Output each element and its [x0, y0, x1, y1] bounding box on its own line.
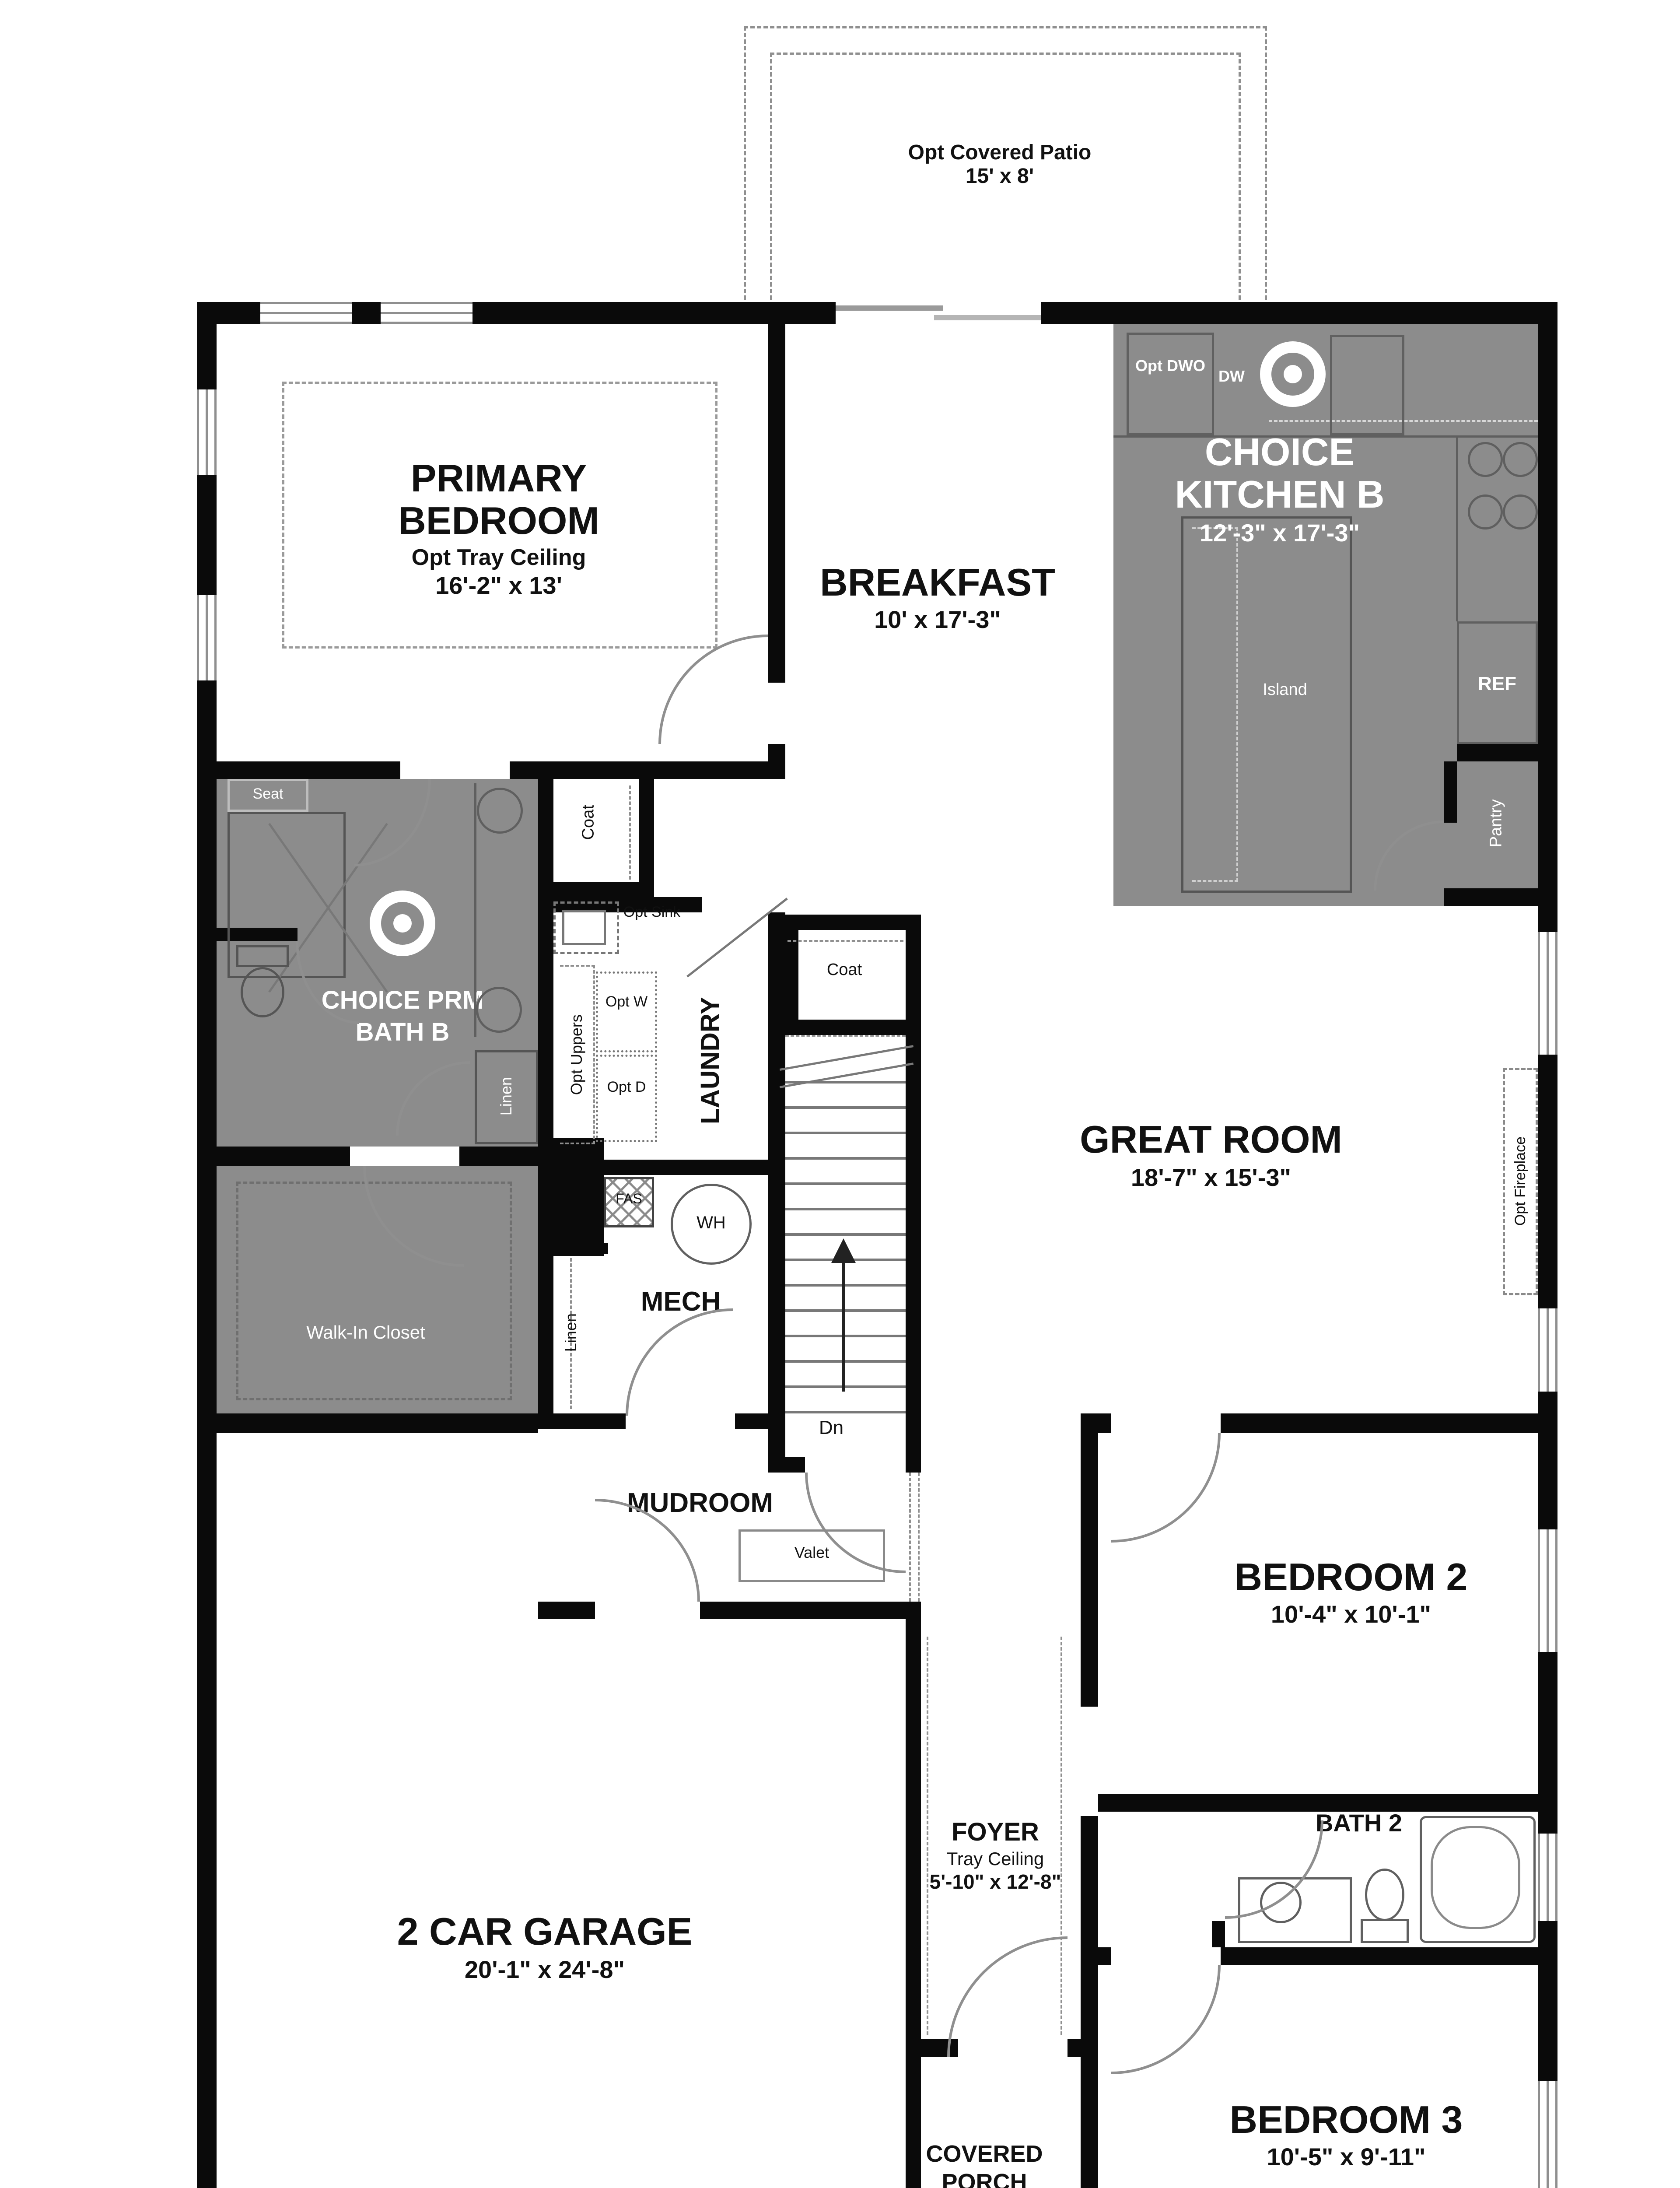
window: [197, 595, 217, 680]
coat-rod-dashed: [629, 785, 631, 880]
sliding-door-panel: [934, 315, 1041, 320]
double-wall-oven: [1127, 333, 1214, 435]
wall: [538, 1155, 553, 1429]
stairs-open-dashed: [785, 1035, 906, 1037]
breakfast-label-group: BREAKFAST 10' x 17'-3": [780, 561, 1095, 633]
bedroom2-dims: 10'-4" x 10'-1": [1193, 1601, 1508, 1628]
vanity-edge: [474, 783, 476, 1037]
wall: [768, 912, 785, 1473]
garage-label: 2 CAR GARAGE: [387, 1910, 702, 1953]
bedroom3-label: BEDROOM 3: [1189, 2098, 1504, 2142]
foyer-dims: 5'-10" x 12'-8": [923, 1871, 1067, 1893]
counter-edge: [1456, 435, 1458, 621]
wall: [217, 761, 400, 779]
stairs-dn-label: Dn: [805, 1417, 857, 1438]
wall: [459, 1147, 538, 1166]
bedroom3-label-group: BEDROOM 3 10'-5" x 9'-11": [1189, 2098, 1504, 2170]
wall: [639, 779, 654, 882]
window: [260, 302, 352, 324]
toilet-tank: [1361, 1919, 1409, 1943]
bedroom3-dims: 10'-5" x 9'-11": [1189, 2143, 1504, 2171]
wall: [1098, 1947, 1111, 1965]
wall: [510, 761, 785, 779]
dryer-box: [596, 1055, 657, 1142]
opt-washer-label: Opt W: [596, 993, 657, 1010]
floor-plan: Opt Covered Patio 15' x 8': [0, 0, 1680, 2188]
great-room-label-group: GREAT ROOM 18'-7" x 15'-3": [1053, 1118, 1368, 1191]
foyer-option: Tray Ceiling: [923, 1848, 1067, 1869]
choice-marker-icon: [1260, 341, 1326, 407]
laundry-sink: [562, 910, 606, 945]
window: [1538, 932, 1557, 1055]
garage-dims: 20'-1" x 24'-8": [387, 1956, 702, 1984]
garage-label-group: 2 CAR GARAGE 20'-1" x 24'-8": [387, 1910, 702, 1983]
range-cabinet: [1330, 335, 1404, 435]
opt-dwo-label: Opt DWO: [1135, 357, 1205, 375]
foyer-label-group: FOYER Tray Ceiling 5'-10" x 12'-8": [923, 1818, 1067, 1893]
valet-label: Valet: [738, 1544, 885, 1561]
window: [197, 389, 217, 475]
mech-door-arc: [626, 1308, 733, 1416]
front-door-arc: [947, 1936, 1067, 2057]
pantry-label: Pantry: [1487, 779, 1506, 867]
patio-dims: 15' x 8': [847, 165, 1153, 188]
great-room-label: GREAT ROOM: [1053, 1118, 1368, 1161]
wall: [700, 1602, 906, 1619]
toilet-tank: [236, 945, 289, 967]
wall: [1081, 1816, 1098, 2188]
cased-opening: [918, 1473, 920, 1602]
wh-label: WH: [671, 1213, 752, 1233]
bedroom2-door-arc: [1111, 1433, 1221, 1543]
bathtub: [1420, 1816, 1536, 1943]
laundry-label: LAUNDRY: [695, 995, 724, 1126]
wall: [1444, 761, 1457, 823]
wall: [217, 1147, 350, 1166]
burner-icon: [1503, 494, 1538, 529]
wall: [538, 779, 553, 1155]
breakfast-label: BREAKFAST: [780, 561, 1095, 604]
window: [381, 302, 472, 324]
wall: [783, 1020, 906, 1035]
seat-label: Seat: [227, 785, 308, 802]
opt-uppers-label: Opt Uppers: [568, 989, 585, 1120]
coat-rod-dashed: [787, 940, 903, 942]
wall: [1081, 1433, 1098, 1707]
bedroom2-label-group: BEDROOM 2 10'-4" x 10'-1": [1193, 1556, 1508, 1628]
island-overhang-dashed: [1192, 527, 1238, 882]
closet-shelving-dashed: [236, 1182, 512, 1400]
bathtub-inner: [1431, 1826, 1520, 1929]
primary-bedroom-door-arc: [658, 635, 768, 744]
choice-marker-dot: [1284, 365, 1302, 383]
patio-label: Opt Covered Patio: [847, 141, 1153, 165]
wall: [1221, 1947, 1538, 1965]
wall: [538, 882, 654, 897]
wall: [906, 915, 921, 1473]
breakfast-dims: 10' x 17'-3": [780, 606, 1095, 634]
wall: [538, 1602, 595, 1619]
wall: [906, 1602, 921, 2188]
sink-icon: [476, 987, 522, 1033]
window: [1538, 2081, 1557, 2188]
primary-bedroom-label: PRIMARY BEDROOM: [341, 457, 656, 542]
sink-icon: [477, 788, 523, 834]
opt-dryer-label: Opt D: [596, 1079, 657, 1096]
burner-icon: [1503, 442, 1538, 477]
washer-box: [596, 971, 657, 1052]
toilet-bowl: [241, 967, 284, 1017]
bedroom3-door-arc: [1111, 1965, 1221, 2074]
choice-marker-icon: [370, 891, 435, 956]
sliding-door-panel: [836, 305, 943, 311]
wall: [1444, 888, 1538, 906]
window: [1538, 1834, 1557, 1921]
wall: [1212, 1921, 1225, 1947]
kitchen-label-group: CHOICE KITCHEN B 12'-3" x 17'-3": [1122, 431, 1437, 547]
wall: [1221, 1413, 1538, 1433]
walk-in-closet-label: Walk-In Closet: [300, 1322, 431, 1343]
wall: [1081, 1413, 1111, 1433]
wall: [604, 1160, 770, 1175]
wall: [553, 1243, 608, 1254]
choice-marker-dot: [393, 914, 412, 933]
wall: [1067, 2039, 1081, 2057]
dishwasher-label: DW: [1212, 368, 1251, 385]
ref-label: REF: [1453, 673, 1541, 694]
burner-icon: [1468, 494, 1503, 529]
wall: [785, 1457, 805, 1473]
covered-porch-label: COVERED PORCH: [910, 2140, 1059, 2188]
fas-label: FAS: [604, 1191, 654, 1207]
wall: [197, 302, 217, 2188]
window: [1538, 1308, 1557, 1392]
kitchen-dims: 12'-3" x 17'-3": [1122, 519, 1437, 547]
kitchen-label: CHOICE KITCHEN B: [1122, 431, 1437, 516]
cased-opening: [909, 1473, 911, 1602]
opt-fireplace-label: Opt Fireplace: [1512, 1085, 1529, 1277]
wall: [735, 1413, 785, 1429]
primary-bedroom-option: Opt Tray Ceiling: [341, 545, 656, 570]
stair-direction-arrow: [831, 1238, 856, 1263]
stairs-coat-label: Coat: [796, 961, 892, 979]
island-label: Island: [1241, 680, 1329, 699]
wall: [783, 915, 906, 930]
wall: [538, 1413, 626, 1429]
wall: [197, 1413, 538, 1433]
coat-closet-label: Coat: [579, 778, 598, 866]
window: [1538, 1529, 1557, 1652]
stair-direction-stem: [842, 1262, 845, 1392]
bedroom2-label: BEDROOM 2: [1193, 1556, 1508, 1599]
sliding-door: [836, 302, 1041, 324]
burner-icon: [1468, 442, 1503, 477]
primary-bedroom-label-group: PRIMARY BEDROOM Opt Tray Ceiling 16'-2" …: [341, 457, 656, 600]
great-room-dims: 18'-7" x 15'-3": [1053, 1164, 1368, 1192]
hall-linen-label: Linen: [562, 1289, 580, 1376]
patio-label-group: Opt Covered Patio 15' x 8': [847, 141, 1153, 188]
toilet-bowl: [1365, 1869, 1404, 1921]
wall: [1457, 744, 1538, 761]
opt-sink-label: Opt Sink: [621, 904, 682, 921]
bath-linen-label: Linen: [497, 1052, 515, 1140]
foyer-label: FOYER: [923, 1818, 1067, 1847]
primary-bedroom-dims: 16'-2" x 13': [341, 572, 656, 600]
